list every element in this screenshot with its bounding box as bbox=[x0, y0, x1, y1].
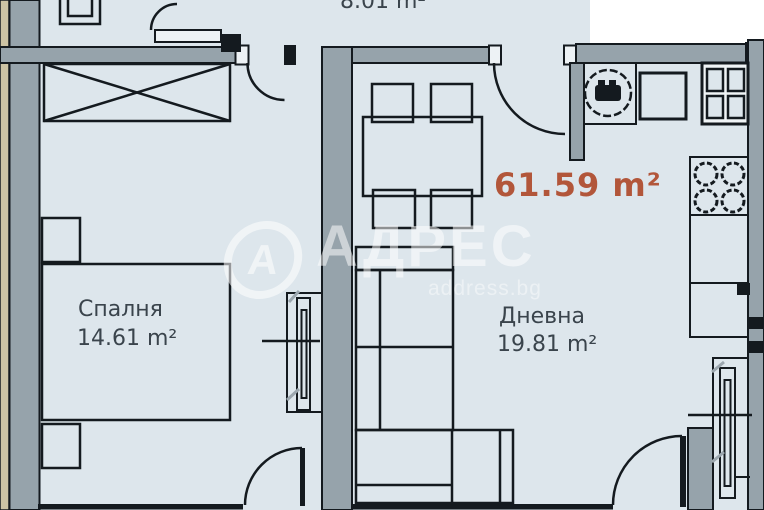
wall-joint bbox=[748, 317, 764, 329]
wall-joint bbox=[748, 341, 764, 353]
faucet-icon bbox=[609, 80, 616, 87]
bedroom-area-label: 14.61 m² bbox=[77, 326, 177, 351]
appliance-icon bbox=[640, 73, 686, 119]
window-icon bbox=[297, 298, 310, 410]
stove-burner-icon bbox=[695, 163, 717, 185]
living-area-label: 19.81 m² bbox=[497, 332, 597, 357]
window-icon bbox=[725, 380, 731, 486]
wall-kitchen-top bbox=[576, 44, 764, 63]
living-name-label: Дневна bbox=[499, 304, 585, 329]
stove-burner-icon bbox=[722, 190, 744, 212]
dining-set bbox=[363, 84, 482, 228]
wall-right bbox=[748, 40, 764, 510]
door-jamb bbox=[489, 46, 501, 65]
faucet-icon bbox=[598, 80, 605, 87]
fridge-icon bbox=[707, 69, 723, 91]
nightstand bbox=[42, 218, 80, 262]
floor-plan: 8.01 m² 61.59 m² Спалня 14.61 m² Дневна … bbox=[0, 0, 764, 510]
neighbour-fixture bbox=[60, 0, 100, 24]
wall-bedroom-bottom bbox=[38, 504, 243, 510]
faucet-icon bbox=[595, 85, 621, 101]
sofa-body bbox=[356, 270, 453, 430]
dining-table bbox=[363, 117, 482, 196]
wall-bedroom-top bbox=[0, 47, 236, 63]
wall-bottom-right-stub bbox=[688, 428, 713, 510]
fridge-icon bbox=[728, 69, 744, 91]
sofa bbox=[356, 247, 513, 503]
door-post bbox=[221, 34, 241, 52]
hall-area-label: 8.01 m² bbox=[340, 0, 426, 14]
door-post bbox=[284, 45, 296, 65]
outside-area bbox=[590, 0, 764, 44]
stove-burner-icon bbox=[695, 190, 717, 212]
bedroom-name-label: Спалня bbox=[78, 297, 163, 322]
window-icon bbox=[720, 368, 735, 498]
sofa-armrest bbox=[356, 247, 453, 270]
total-area-label: 61.59 m² bbox=[494, 166, 662, 204]
fridge-icon bbox=[707, 96, 723, 118]
walls bbox=[0, 0, 764, 510]
wall-left bbox=[10, 0, 40, 510]
door-arc-bedroom bbox=[248, 63, 285, 100]
window-icon bbox=[302, 310, 307, 398]
door-arc-balcony bbox=[613, 436, 682, 505]
door-panel bbox=[155, 30, 221, 42]
counter-handle bbox=[737, 283, 750, 295]
door-jamb bbox=[564, 46, 576, 65]
shaft bbox=[60, 0, 100, 24]
sofa-chaise bbox=[356, 430, 513, 503]
shaft bbox=[68, 0, 92, 16]
door-arc-upper bbox=[151, 4, 177, 30]
door-arc-bedroom-bottom bbox=[245, 448, 302, 505]
wall-hall-stub bbox=[570, 63, 584, 160]
door-panel bbox=[680, 436, 686, 507]
wall-center bbox=[322, 47, 352, 510]
nightstand bbox=[42, 424, 80, 468]
floor-plan-drawing bbox=[0, 0, 764, 510]
door-arc-living bbox=[494, 63, 565, 134]
fridge-icon bbox=[728, 96, 744, 118]
stove-burner-icon bbox=[722, 163, 744, 185]
exterior-strip bbox=[0, 0, 9, 510]
door-panel bbox=[300, 448, 305, 506]
wall-living-bottom bbox=[352, 504, 613, 510]
bedroom-furniture bbox=[42, 64, 230, 468]
